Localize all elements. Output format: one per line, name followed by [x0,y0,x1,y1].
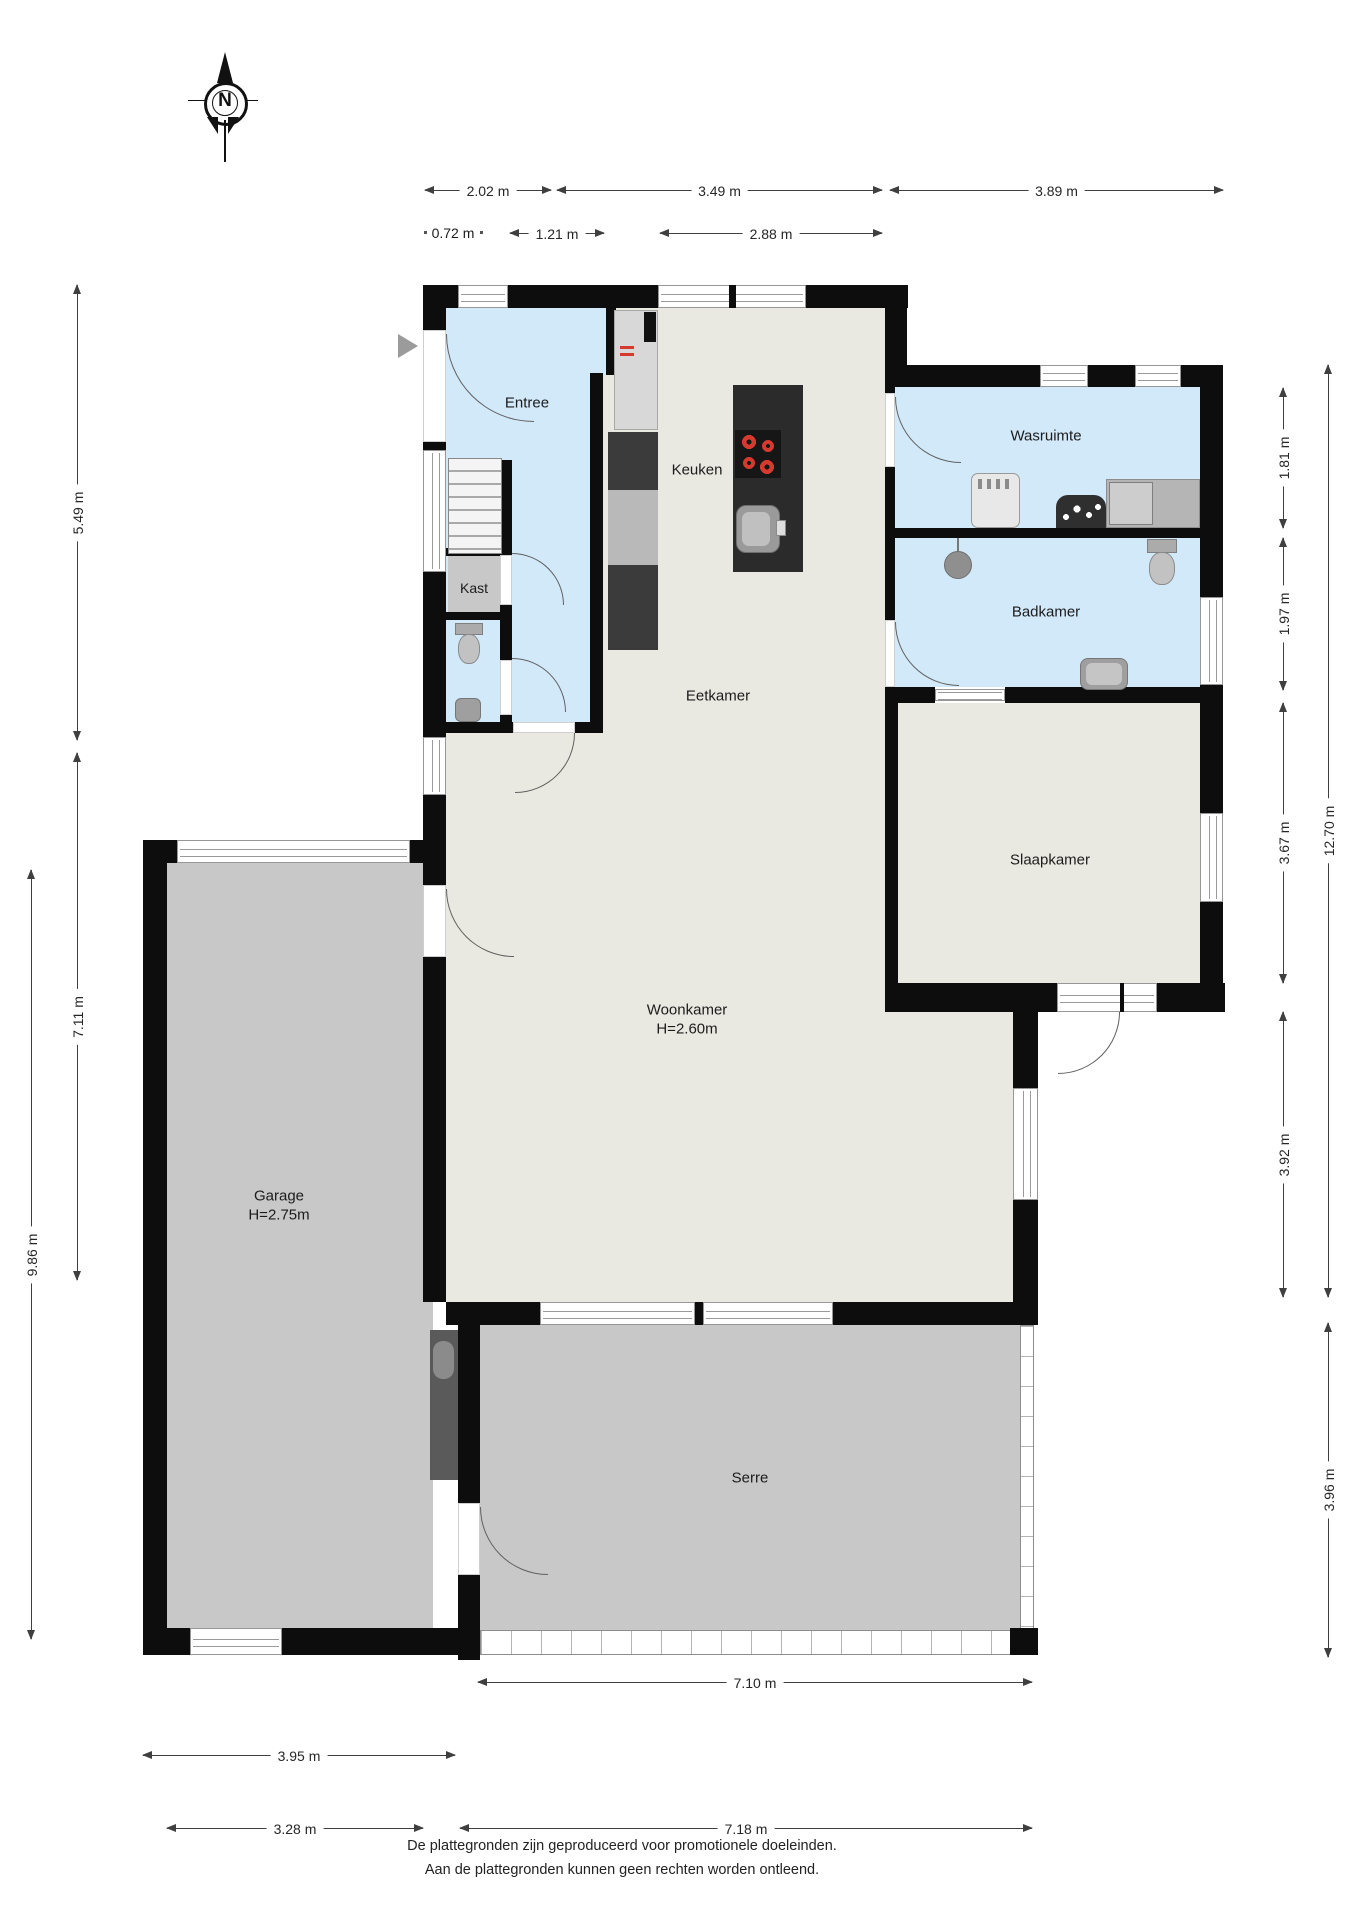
hob-icon [735,430,781,478]
wall [458,1302,480,1503]
dimension-label: 3.49 m [691,183,748,199]
dimension-label: 12.70 m [1321,799,1337,864]
window-mullion [1120,983,1124,1012]
meter-marks [620,346,634,356]
wall [1088,365,1135,387]
dimension-label: 3.95 m [271,1748,328,1764]
dimension-label: 5.49 m [70,484,86,541]
window [190,1628,282,1655]
utility-sink [1056,495,1106,528]
wall [1157,983,1225,1012]
room-label-entree: Entree [505,395,549,412]
toilet-bowl [1149,552,1175,585]
wall [885,983,1057,1012]
dimension-line: 3.95 m [143,1755,455,1756]
dimension-line: 2.02 m [425,190,551,191]
wasruimte-door-opening [885,393,895,467]
kitchen-faucet [776,520,786,536]
slaapkamer-door-swing [1058,1012,1120,1074]
dimension-label: 7.18 m [718,1821,775,1837]
wall [575,722,603,733]
window-mullion [695,1302,703,1325]
wall [458,1575,480,1660]
room-label-eetkamer: Eetkamer [686,688,750,705]
washing-machine-controls [978,479,1014,489]
compass-north-label: N [218,90,232,112]
wc-toilet-bowl [458,634,480,664]
wall [143,1628,190,1655]
serre-door-opening [458,1503,480,1575]
disclaimer-line-1: De plattegronden zijn geproduceerd voor … [407,1838,837,1854]
floor-plan: N [0,0,1358,1920]
badkamer-door-opening [885,620,895,687]
dimension-line: 5.49 m [77,285,78,740]
disclaimer-line-2: Aan de plattegronden kunnen geen rechten… [425,1862,819,1878]
dimension-line: 3.89 m [890,190,1223,191]
entrance-arrow-icon [398,334,418,358]
garage-floor [167,863,433,1628]
room-label-slaapkamer: Slaapkamer [1010,852,1090,869]
wall [1200,902,1223,983]
wall [500,715,512,722]
dryer-door [1109,482,1153,525]
wall [885,703,898,1012]
room-label-serre: Serre [732,1470,769,1487]
wall [1181,365,1223,387]
dimension-line: 3.49 m [557,190,882,191]
dimension-line: 7.11 m [77,753,78,1280]
dimension-label: 3.67 m [1276,815,1292,872]
compass-wing-right [228,117,239,134]
wall [885,285,907,365]
bathroom-sink-bowl [1086,663,1122,685]
dimension-line: 2.88 m [660,233,882,234]
kast-door-opening [500,555,512,605]
wall [143,840,177,863]
window [458,285,508,308]
room-label-garage-height: H=2.75m [248,1207,309,1224]
staircase [448,458,502,554]
wall [410,840,423,863]
wall [282,1628,480,1655]
wall [1010,1628,1038,1655]
compass-wing-left [207,117,218,134]
dimension-line: 3.28 m [167,1828,423,1829]
wall [833,1302,1038,1325]
room-label-wasruimte: Wasruimte [1010,428,1081,445]
wall [446,722,513,733]
room-label-badkamer: Badkamer [1012,604,1080,621]
wall [508,285,658,308]
toilet-tank [1147,539,1177,553]
window [1200,813,1223,902]
wc-door-opening [500,660,512,715]
dimension-label: 3.89 m [1028,183,1085,199]
dimension-line: 3.96 m [1328,1323,1329,1657]
wall [423,957,446,1302]
dimension-label: 3.96 m [1321,1462,1337,1519]
dimension-line: 3.67 m [1283,703,1284,983]
wall [500,605,512,660]
shower-arm [957,538,959,552]
room-label-keuken: Keuken [672,462,723,479]
dimension-line: 12.70 m [1328,365,1329,1297]
dimension-line: 1.21 m [510,233,604,234]
wall [446,612,502,620]
room-label-woonkamer: Woonkamer [647,1002,728,1019]
dimension-label: 2.02 m [460,183,517,199]
dimension-label: 1.97 m [1276,586,1292,643]
interior-glass-panel [935,689,1005,701]
dimension-label: 1.21 m [529,226,586,242]
dimension-label: 7.10 m [727,1675,784,1691]
dimension-line: 1.81 m [1283,388,1284,528]
window [1200,597,1223,685]
serre-glass-wall-right [1020,1325,1034,1630]
dimension-label: 9.86 m [24,1226,40,1283]
boiler [433,1341,454,1379]
slaapkamer-terrace-door [1057,983,1157,1012]
garage-door-opening [423,885,446,957]
shower-head-icon [944,551,972,579]
wall [895,528,1200,538]
dimension-line: 1.97 m [1283,538,1284,690]
dimension-tick [424,231,427,234]
dimension-line: 9.86 m [31,870,32,1639]
wall [423,285,446,330]
meter-cupboard-panel [644,312,656,342]
wall [590,373,603,722]
dimension-label: 2.88 m [743,226,800,242]
dimension-line: 7.18 m [460,1828,1032,1829]
kitchen-counter [608,565,658,650]
window [1040,365,1088,387]
kitchen-sink-bowl [742,512,770,546]
wall [885,467,895,620]
dimension-label: 0.72 m [432,225,475,241]
window-mullion [729,285,736,308]
dimension-label: 7.11 m [70,989,86,1045]
wall [143,863,167,1628]
room-label-garage: Garage [254,1188,304,1205]
wall [1200,703,1223,813]
wall [1013,1012,1038,1088]
front-door-opening [423,330,446,442]
wall [1200,387,1223,597]
kitchen-counter [608,432,658,490]
room-label-kast: Kast [460,580,488,596]
window [703,1302,833,1325]
dimension-line: 7.10 m [478,1682,1032,1683]
dimension-label: 3.28 m [267,1821,324,1837]
dimension-tick [480,231,483,234]
room-label-woonkamer-height: H=2.60m [656,1021,717,1038]
wall [1013,1200,1038,1302]
window [177,840,410,863]
wall [423,572,446,737]
dimension-label: 3.92 m [1276,1126,1292,1183]
serre-glass-wall-bottom [480,1630,1034,1655]
window [423,450,446,572]
slaapkamer-floor [898,703,1200,983]
kitchen-counter [608,490,658,565]
wall [885,687,935,703]
dimension-line: 3.92 m [1283,1012,1284,1297]
window [1135,365,1181,387]
wall [423,442,446,450]
window [540,1302,695,1325]
wc-basin [455,698,481,722]
window [423,737,446,795]
eetkamer-door-opening [513,722,575,733]
compass-needle-icon [217,52,233,83]
compass-tail [224,120,226,162]
wall [885,365,1040,387]
dimension-label: 1.81 m [1276,430,1292,487]
wall [423,795,446,885]
window [1013,1088,1038,1200]
